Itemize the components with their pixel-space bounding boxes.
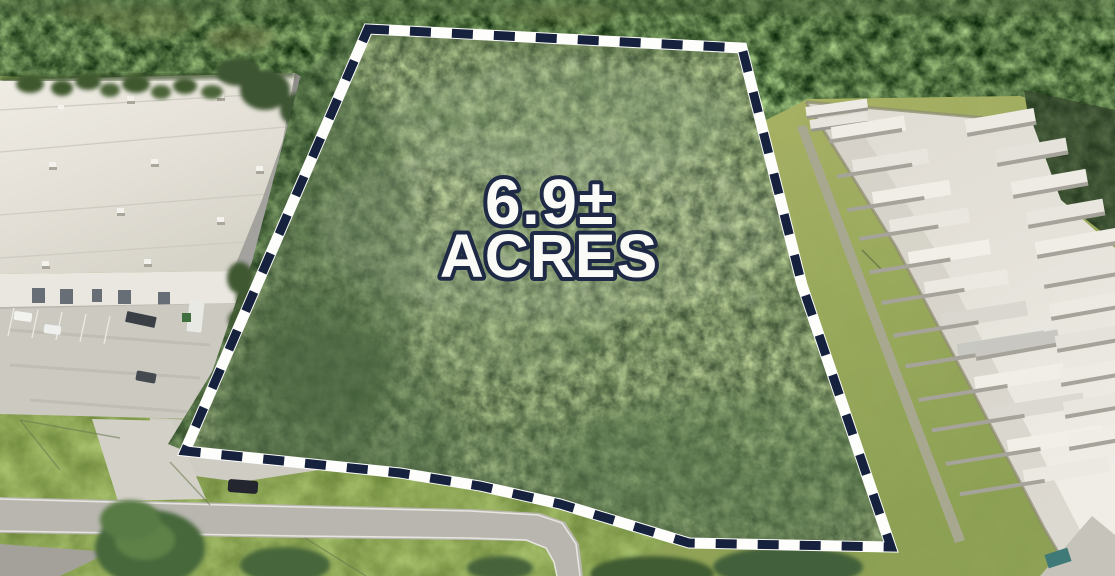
svg-text:ACRES: ACRES	[440, 222, 659, 290]
